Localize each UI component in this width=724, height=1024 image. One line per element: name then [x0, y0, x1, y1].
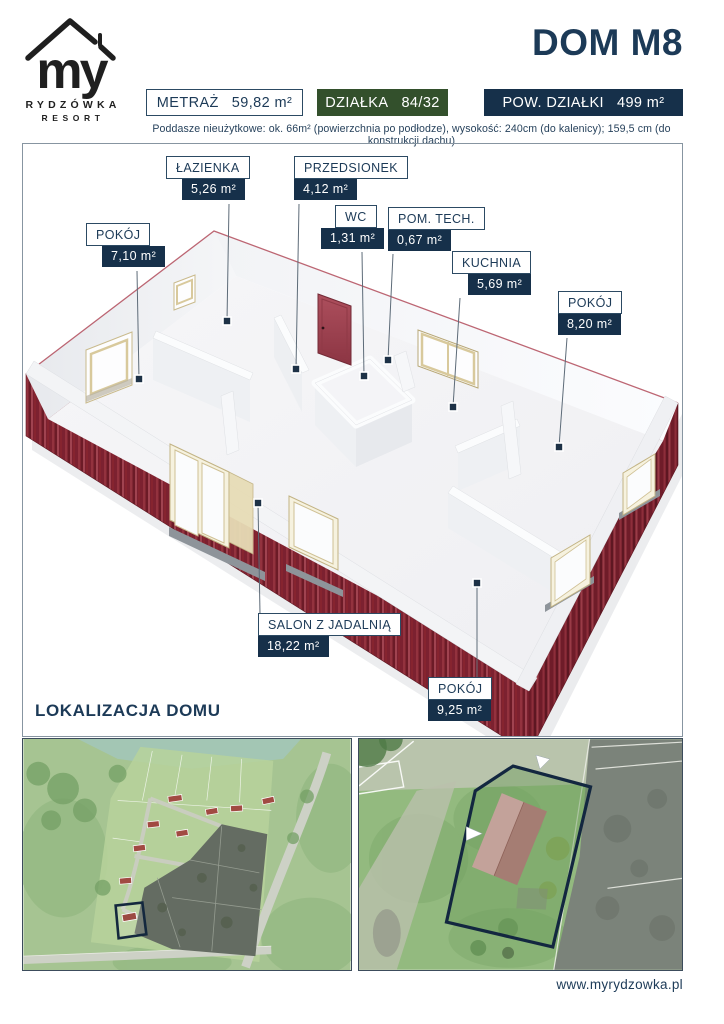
page-title: DOM M8	[532, 22, 683, 64]
badge-dzialka-value: 84/32	[401, 95, 439, 111]
badge-dzialka-label: DZIAŁKA	[325, 95, 388, 111]
room-name: POKÓJ	[86, 223, 150, 246]
room-area: 5,26 m²	[182, 179, 245, 200]
badge-pow-dzialki: POW. DZIAŁKI 499 m²	[484, 89, 683, 116]
room-area: 7,10 m²	[102, 246, 165, 267]
room-area: 4,12 m²	[294, 179, 357, 200]
badge-metraz-value: 59,82 m²	[232, 95, 292, 111]
badge-dzialka: DZIAŁKA 84/32	[317, 89, 448, 116]
badge-metraz: METRAŻ 59,82 m²	[146, 89, 303, 116]
room-label-pokoj-925: POKÓJ 9,25 m²	[428, 677, 492, 721]
room-name: POKÓJ	[428, 677, 492, 700]
room-label-salon: SALON Z JADALNIĄ 18,22 m²	[258, 613, 401, 657]
room-name: KUCHNIA	[452, 251, 531, 274]
room-label-pom-tech: POM. TECH. 0,67 m²	[388, 207, 485, 251]
room-label-kuchnia: KUCHNIA 5,69 m²	[452, 251, 531, 295]
room-area: 18,22 m²	[258, 636, 329, 657]
room-area: 8,20 m²	[558, 314, 621, 335]
site-plan-aerial-photo	[22, 738, 352, 971]
badge-pow-dzialki-value: 499 m²	[617, 95, 665, 111]
room-label-pokoj-820: POKÓJ 8,20 m²	[558, 291, 622, 335]
page: my RYDZÓWKA RESORT DOM M8 METRAŻ 59,82 m…	[0, 0, 724, 1024]
website-link[interactable]: www.myrydzowka.pl	[556, 977, 683, 992]
highlighted-plot	[116, 903, 147, 939]
room-area: 5,69 m²	[468, 274, 531, 295]
logo-wordmark: my	[36, 42, 108, 100]
room-label-lazienka: ŁAZIENKA 5,26 m²	[166, 156, 250, 200]
room-name: WC	[335, 205, 377, 228]
room-label-pokoj-710: POKÓJ 7,10 m²	[86, 223, 165, 267]
room-name: PRZEDSIONEK	[294, 156, 408, 179]
plot-closeup-aerial-photo	[358, 738, 683, 971]
room-name: SALON Z JADALNIĄ	[258, 613, 401, 636]
entry-door-icon	[318, 294, 351, 365]
room-area: 1,31 m²	[321, 228, 384, 249]
brand-logo: my RYDZÓWKA RESORT	[22, 12, 122, 124]
room-name: POM. TECH.	[388, 207, 485, 230]
badge-metraz-label: METRAŻ	[157, 95, 219, 111]
room-area: 9,25 m²	[428, 700, 491, 721]
badge-pow-dzialki-label: POW. DZIAŁKI	[502, 95, 604, 111]
brand-name: RYDZÓWKA	[25, 98, 120, 111]
brand-subname: RESORT	[41, 113, 104, 123]
room-area: 0,67 m²	[388, 230, 451, 251]
room-label-wc: WC 1,31 m²	[335, 205, 384, 249]
room-name: POKÓJ	[558, 291, 622, 314]
room-name: ŁAZIENKA	[166, 156, 250, 179]
location-heading: LOKALIZACJA DOMU	[35, 701, 221, 721]
room-label-przedsionek: PRZEDSIONEK 4,12 m²	[294, 156, 408, 200]
